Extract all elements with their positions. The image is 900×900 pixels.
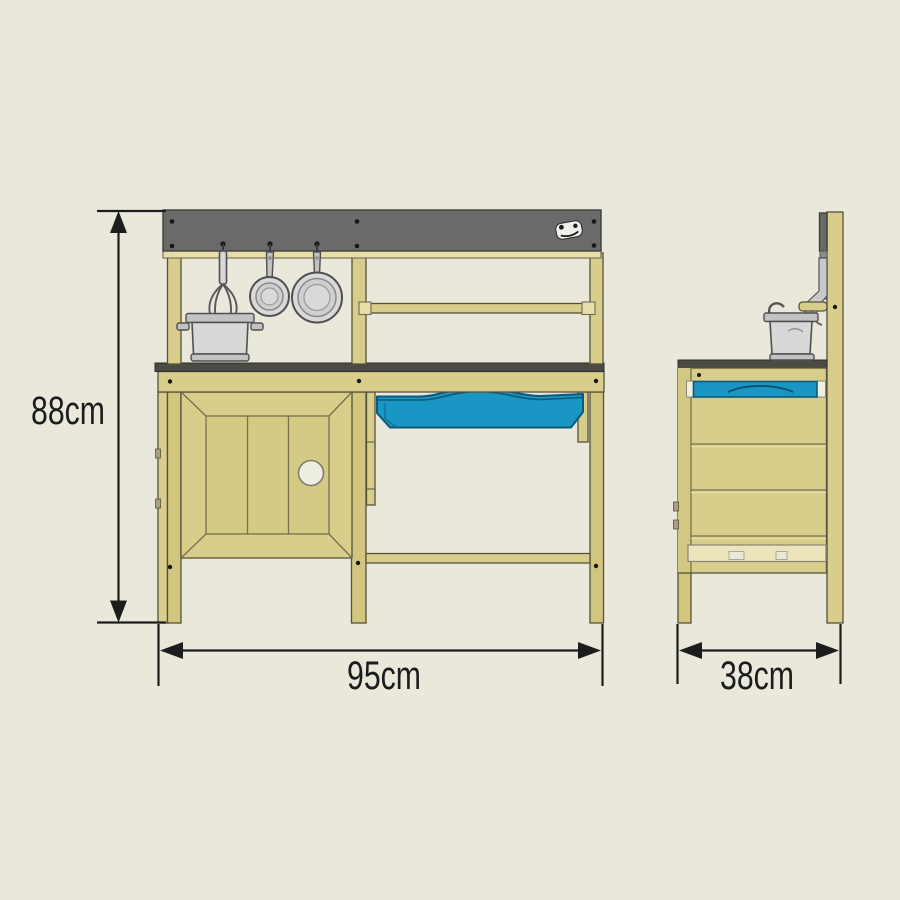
side-basin-edge bbox=[694, 382, 818, 398]
diagram-canvas: 88cm 95cm 38cm bbox=[0, 0, 900, 900]
side-header-edge bbox=[820, 213, 828, 251]
front-left-leg bbox=[168, 392, 182, 623]
front-right-leg bbox=[590, 392, 604, 623]
upper-left-post bbox=[168, 253, 182, 364]
product-dimension-diagram: 88cm 95cm 38cm bbox=[0, 0, 900, 900]
width-dimension-label: 95cm bbox=[347, 654, 421, 698]
door-finger-hole bbox=[299, 461, 324, 486]
cabinet-door bbox=[181, 392, 352, 558]
header-panel bbox=[163, 210, 601, 251]
side-hook-rail bbox=[799, 302, 827, 311]
apron-rail bbox=[158, 372, 604, 393]
height-dimension-label: 88cm bbox=[31, 389, 105, 433]
front-middle-leg bbox=[352, 392, 367, 623]
depth-dimension-label: 38cm bbox=[720, 654, 794, 698]
side-front-leg bbox=[678, 573, 691, 623]
counter-top bbox=[155, 363, 604, 372]
utensil-rail bbox=[359, 302, 595, 315]
stretcher-rail bbox=[366, 554, 590, 564]
side-back-post bbox=[827, 212, 843, 623]
side-bottom-rail bbox=[688, 545, 826, 562]
side-counter-top bbox=[678, 360, 827, 368]
side-face-panel bbox=[678, 368, 827, 573]
